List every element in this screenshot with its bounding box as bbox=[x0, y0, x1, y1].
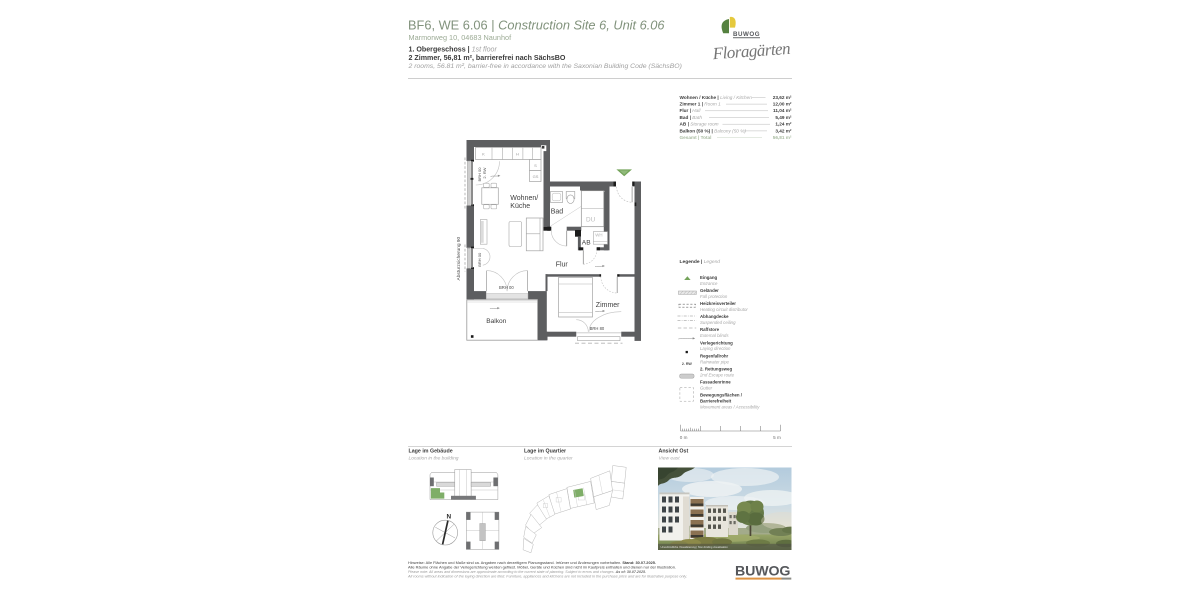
svg-text:Lage im Gebäude: Lage im Gebäude bbox=[409, 449, 453, 455]
svg-text:2. RW: 2. RW bbox=[482, 167, 487, 178]
svg-text:Barrierefreiheit: Barrierefreiheit bbox=[700, 399, 732, 404]
svg-text:Please note: All areas and dim: Please note: All areas and dimensions ar… bbox=[408, 570, 646, 574]
svg-text:2 rooms, 56.81 m², barrier-fre: 2 rooms, 56.81 m², barrier-free in accor… bbox=[408, 63, 682, 70]
svg-text:AB: AB bbox=[582, 240, 591, 247]
svg-text:Lage im Quartier: Lage im Quartier bbox=[524, 449, 566, 455]
svg-text:23,62 m²: 23,62 m² bbox=[773, 95, 792, 100]
svg-text:GS: GS bbox=[533, 174, 539, 179]
svg-text:Verlegerichtung: Verlegerichtung bbox=[700, 340, 733, 345]
svg-text:Heating circuit distributor: Heating circuit distributor bbox=[700, 307, 748, 312]
svg-text:Geländer: Geländer bbox=[700, 288, 719, 293]
svg-text:11,04 m²: 11,04 m² bbox=[773, 108, 792, 113]
svg-text:Gutter: Gutter bbox=[700, 386, 713, 391]
svg-text:2. Rettungsweg: 2. Rettungsweg bbox=[700, 367, 732, 372]
svg-text:2 Zimmer, 56,81 m², barrierefr: 2 Zimmer, 56,81 m², barrierefrei nach Sä… bbox=[409, 54, 566, 62]
svg-text:Flur: Flur bbox=[556, 261, 569, 268]
svg-text:BUWOG: BUWOG bbox=[733, 31, 760, 38]
svg-text:WH: WH bbox=[595, 233, 602, 238]
svg-text:Abhangdecke: Abhangdecke bbox=[700, 314, 729, 319]
svg-text:Ansicht Ost: Ansicht Ost bbox=[659, 449, 689, 455]
svg-text:External blinds: External blinds bbox=[700, 333, 729, 338]
svg-text:DU: DU bbox=[586, 217, 596, 224]
svg-text:N: N bbox=[446, 514, 451, 521]
svg-text:Eingang: Eingang bbox=[700, 275, 717, 280]
svg-text:Laying direction: Laying direction bbox=[700, 346, 731, 351]
svg-text:Suspended ceiling: Suspended ceiling bbox=[700, 320, 736, 325]
svg-text:AB | Storage room: AB | Storage room bbox=[680, 122, 719, 127]
svg-text:S: S bbox=[534, 163, 537, 168]
svg-text:Location in the quarter: Location in the quarter bbox=[524, 455, 573, 461]
svg-text:Alle Räume ohne Angabe der Ver: Alle Räume ohne Angabe der Verlegerichtu… bbox=[408, 565, 676, 569]
svg-text:2. RW: 2. RW bbox=[682, 362, 693, 366]
svg-text:3,42 m²: 3,42 m² bbox=[775, 128, 792, 133]
svg-text:BUWOG: BUWOG bbox=[735, 563, 792, 579]
svg-text:Fall protection: Fall protection bbox=[700, 294, 728, 299]
svg-text:View east: View east bbox=[659, 455, 681, 461]
svg-text:Heizkreisverteiler: Heizkreisverteiler bbox=[700, 301, 736, 306]
svg-text:Marmorweg 10, 04683 Naunhof: Marmorweg 10, 04683 Naunhof bbox=[409, 33, 513, 42]
svg-text:0 m: 0 m bbox=[680, 435, 688, 440]
svg-text:Zimmer 1 | Room 1: Zimmer 1 | Room 1 bbox=[680, 102, 722, 107]
svg-text:Regenfallrohr: Regenfallrohr bbox=[700, 353, 729, 358]
svg-text:1. Obergeschoss | 1st floor: 1. Obergeschoss | 1st floor bbox=[409, 46, 498, 54]
svg-text:H: H bbox=[516, 151, 519, 156]
svg-text:Rainwater pipe: Rainwater pipe bbox=[700, 359, 730, 364]
svg-text:Balkon: Balkon bbox=[486, 318, 506, 325]
svg-text:K: K bbox=[482, 151, 485, 156]
svg-text:Legende | Legend: Legende | Legend bbox=[680, 259, 721, 265]
svg-text:Wohnen/: Wohnen/ bbox=[510, 195, 538, 202]
svg-text:Küche: Küche bbox=[510, 203, 530, 210]
svg-text:Fassadenrinne: Fassadenrinne bbox=[700, 380, 731, 385]
svg-text:12,00 m²: 12,00 m² bbox=[773, 102, 792, 107]
svg-text:Flur | Hall: Flur | Hall bbox=[680, 108, 702, 113]
svg-text:All rooms without indication o: All rooms without indication of the layi… bbox=[407, 575, 687, 579]
svg-text:Movement areas / Accessibility: Movement areas / Accessibility bbox=[700, 405, 760, 410]
svg-text:Location in the building: Location in the building bbox=[409, 455, 459, 461]
svg-text:BF6, WE 6.06 | Construction Si: BF6, WE 6.06 | Construction Site 6, Unit… bbox=[408, 18, 665, 33]
svg-text:BRH 00: BRH 00 bbox=[477, 252, 482, 267]
svg-text:Bad | Bath: Bad | Bath bbox=[680, 115, 703, 120]
svg-text:Entrance: Entrance bbox=[700, 281, 718, 286]
svg-text:BRH 80: BRH 80 bbox=[590, 326, 605, 331]
svg-text:Unverbindliche Visualisierung: Unverbindliche Visualisierung | Non-bind… bbox=[661, 545, 729, 549]
svg-text:Balkon (50 %) | Balcony (50 %): Balkon (50 %) | Balcony (50 %) bbox=[680, 128, 747, 133]
svg-text:Gesamt | Total: Gesamt | Total bbox=[680, 135, 712, 140]
svg-text:56,81 m²: 56,81 m² bbox=[773, 135, 792, 140]
svg-text:Raffstore: Raffstore bbox=[700, 327, 720, 332]
svg-text:2nd Escape route: 2nd Escape route bbox=[699, 372, 735, 377]
svg-text:Absturzsicherung 90: Absturzsicherung 90 bbox=[456, 236, 462, 280]
svg-text:Zimmer: Zimmer bbox=[596, 302, 620, 309]
svg-text:1,24 m²: 1,24 m² bbox=[775, 122, 792, 127]
svg-text:Bewegungsflächen /: Bewegungsflächen / bbox=[700, 393, 743, 398]
svg-text:Hinweise: Alle Flächen und Maß: Hinweise: Alle Flächen und Maße sind ca.… bbox=[408, 561, 656, 565]
svg-text:5,49 m²: 5,49 m² bbox=[775, 115, 792, 120]
svg-text:Wohnen / Küche | Living / Kitc: Wohnen / Küche | Living / Kitchen bbox=[680, 95, 753, 100]
svg-text:Bad: Bad bbox=[551, 209, 564, 216]
svg-text:5 m: 5 m bbox=[773, 435, 781, 440]
svg-text:BRH 00: BRH 00 bbox=[499, 285, 514, 290]
